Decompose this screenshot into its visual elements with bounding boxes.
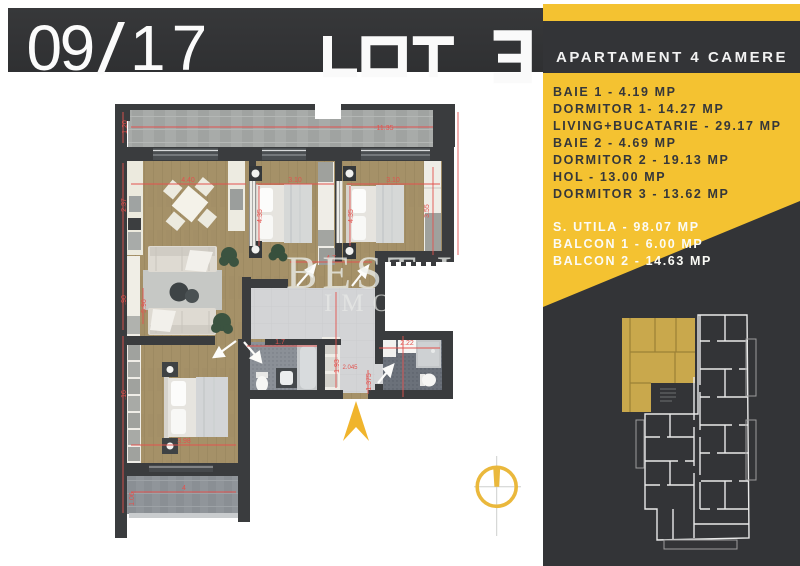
svg-text:2.22: 2.22: [400, 340, 414, 347]
svg-text:3.10: 3.10: [288, 177, 302, 184]
svg-text:17: 17: [130, 12, 213, 84]
svg-text:DORMITOR 2 - 19.13 MP: DORMITOR 2 - 19.13 MP: [553, 153, 729, 167]
svg-text:3.98: 3.98: [177, 438, 191, 445]
svg-text:09: 09: [27, 12, 93, 84]
svg-text:DORMITOR 1- 14.27 MP: DORMITOR 1- 14.27 MP: [553, 102, 724, 116]
svg-text:HOL - 13.00 MP: HOL - 13.00 MP: [553, 170, 666, 184]
svg-text:DORMITOR 3 - 13.62 MP: DORMITOR 3 - 13.62 MP: [553, 187, 729, 201]
svg-text:BALCON 1 - 6.00 MP: BALCON 1 - 6.00 MP: [553, 237, 703, 251]
svg-text:APARTAMENT 4 CAMERE: APARTAMENT 4 CAMERE: [556, 49, 788, 66]
svg-text:2.37: 2.37: [121, 198, 128, 212]
svg-text:BAIE 2 - 4.69 MP: BAIE 2 - 4.69 MP: [553, 136, 677, 150]
svg-text:3.10: 3.10: [386, 177, 400, 184]
svg-text:3.55: 3.55: [424, 204, 431, 218]
svg-text:4.35: 4.35: [257, 209, 264, 223]
svg-text:S. UTILA - 98.07 MP: S. UTILA - 98.07 MP: [553, 220, 700, 234]
svg-text:.16: .16: [121, 390, 128, 400]
svg-text:1.06: 1.06: [129, 492, 136, 506]
svg-text:5.96: 5.96: [141, 299, 148, 313]
svg-text:4.35: 4.35: [348, 209, 355, 223]
svg-text:BAIE 1 - 4.19 MP: BAIE 1 - 4.19 MP: [553, 85, 677, 99]
svg-text:11.35: 11.35: [377, 125, 394, 132]
svg-text:LIVING+BUCATARIE - 29.17 MP: LIVING+BUCATARIE - 29.17 MP: [553, 119, 782, 133]
svg-text:1.7: 1.7: [275, 339, 285, 346]
svg-text:1.93: 1.93: [334, 359, 341, 373]
svg-text:4.40: 4.40: [181, 177, 195, 184]
svg-text:1.20: 1.20: [122, 120, 129, 134]
svg-text:2.045: 2.045: [342, 365, 358, 371]
svg-text:BALCON 2 - 14.63 MP: BALCON 2 - 14.63 MP: [553, 254, 712, 268]
svg-text:1.375: 1.375: [366, 373, 373, 391]
svg-text:.90: .90: [121, 295, 128, 305]
svg-text:4: 4: [182, 485, 186, 492]
